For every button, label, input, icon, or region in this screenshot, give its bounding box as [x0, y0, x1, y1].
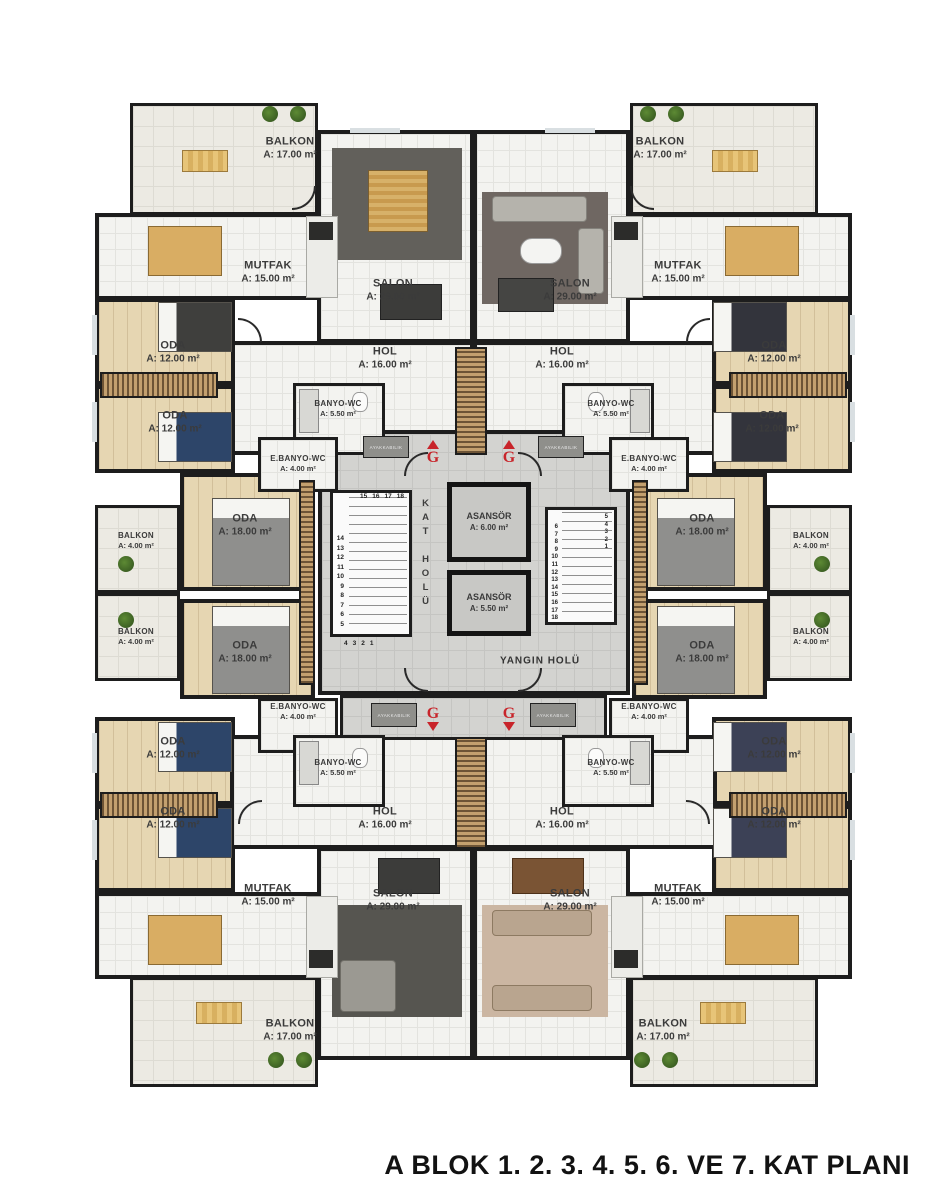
shoe-cabinet-top-right: AYAKKABILIK — [538, 436, 584, 458]
label-bedroom12-top-left-1: ODAA: 12.00 m² — [146, 338, 199, 365]
label-bedroom12-bottom-right-2: ODAA: 12.00 m² — [747, 804, 800, 831]
label-balcony17-bottom-left: BALKONA: 17.00 m² — [263, 1016, 316, 1043]
label-balcony4-right-1: BALKONA: 4.00 m² — [793, 531, 829, 551]
stove-icon — [614, 950, 638, 968]
elevator-label: ASANSÖR — [466, 592, 511, 604]
fire-hall-label: YANGIN HOLÜ — [500, 656, 580, 667]
label-livingroom-bottom-right: SALONA: 29.00 m² — [543, 886, 596, 913]
label-bedroom18-right-1: ODAA: 18.00 m² — [675, 511, 728, 538]
stove-icon — [309, 950, 333, 968]
g-label: G — [496, 706, 522, 721]
label-kitchen-bottom-left: MUTFAKA: 15.00 m² — [241, 881, 294, 908]
sofa — [340, 960, 396, 1012]
stair-left-numbers: 141312111098765 — [332, 534, 344, 629]
window — [92, 315, 97, 355]
window — [92, 733, 97, 773]
label-kitchen-bottom-right: MUTFAKA: 15.00 m² — [651, 881, 704, 908]
label-balcony17-top-left: BALKONA: 17.00 m² — [263, 134, 316, 161]
elevator-label: ASANSÖR — [466, 511, 511, 523]
wardrobe-top-right — [729, 372, 847, 398]
plan-caption: A BLOK 1. 2. 3. 4. 5. 6. VE 7. KAT PLANI — [384, 1150, 910, 1181]
arrow-up-icon — [503, 440, 515, 449]
window — [850, 733, 855, 773]
window — [850, 315, 855, 355]
arrow-down-icon — [427, 722, 439, 731]
window — [545, 128, 595, 133]
label-bedroom18-left-1: ODAA: 18.00 m² — [218, 511, 271, 538]
window — [92, 402, 97, 442]
elevator-large: ASANSÖRA: 6.00 m² — [447, 482, 531, 562]
stair-direction-down-right: G — [496, 706, 522, 731]
label-bedroom12-bottom-left-1: ODAA: 12.00 m² — [146, 734, 199, 761]
plant — [268, 1052, 284, 1068]
elevator-area: A: 5.50 m² — [466, 604, 511, 614]
label-balcony17-top-right: BALKONA: 17.00 m² — [633, 134, 686, 161]
plant — [640, 106, 656, 122]
floor-hall-label: KAT HOLÜ — [420, 498, 431, 633]
window — [850, 402, 855, 442]
wardrobe-top-left — [100, 372, 218, 398]
dining-table — [368, 170, 428, 232]
sofa — [492, 196, 587, 222]
label-bedroom18-left-2: ODAA: 18.00 m² — [218, 638, 271, 665]
stove-icon — [614, 222, 638, 240]
arrow-down-icon — [503, 722, 515, 731]
arrow-up-icon — [427, 440, 439, 449]
stair-steps — [349, 495, 407, 632]
plant — [662, 1052, 678, 1068]
stair-right-numbers: 6789101112131415161718 — [547, 524, 558, 623]
label-kitchen-top-right: MUTFAKA: 15.00 m² — [651, 258, 704, 285]
plant — [118, 612, 134, 628]
shoe-cabinet-bottom-right: AYAKKABILIK — [530, 703, 576, 727]
wardrobe-mid-left — [299, 480, 315, 685]
label-bedroom12-bottom-left-2: ODAA: 12.00 m² — [146, 804, 199, 831]
sun-lounger — [712, 150, 758, 172]
duct-shaft-bottom — [455, 737, 487, 849]
label-hall-bottom-right: HOLA: 16.00 m² — [535, 804, 588, 831]
sun-lounger — [700, 1002, 746, 1024]
g-label: G — [420, 706, 446, 721]
label-ensuite-top-left: E.BANYO-WCA: 4.00 m² — [270, 454, 325, 474]
window — [350, 128, 400, 133]
label-livingroom-bottom-left: SALONA: 29.00 m² — [366, 886, 419, 913]
shoe-cabinet-bottom-left: AYAKKABILIK — [371, 703, 417, 727]
label-bedroom12-top-right-2: ODAA: 12.00 m² — [745, 408, 798, 435]
plant — [296, 1052, 312, 1068]
kitchen-table — [725, 226, 799, 276]
g-label: G — [420, 450, 446, 465]
elevator-area: A: 6.00 m² — [466, 523, 511, 533]
label-hall-top-right: HOLA: 16.00 m² — [535, 344, 588, 371]
label-hall-bottom-left: HOLA: 16.00 m² — [358, 804, 411, 831]
label-bathroom-top-right: BANYO-WCA: 5.50 m² — [587, 399, 634, 419]
door-swing — [686, 318, 710, 342]
coffee-table — [520, 238, 562, 264]
elevator-small: ASANSÖRA: 5.50 m² — [447, 570, 531, 636]
label-livingroom-top-right: SALONA: 29.00 m² — [543, 276, 596, 303]
stair-left-bottom-numbers: 4321 — [344, 640, 379, 647]
label-balcony4-left-1: BALKONA: 4.00 m² — [118, 531, 154, 551]
sofa — [492, 910, 592, 936]
label-bedroom12-top-left-2: ODAA: 12.00 m² — [148, 408, 201, 435]
plant — [668, 106, 684, 122]
stair-right-start-numbers: 54321 — [598, 514, 608, 552]
plant — [118, 556, 134, 572]
window — [850, 820, 855, 860]
label-balcony4-left-2: BALKONA: 4.00 m² — [118, 627, 154, 647]
label-balcony17-bottom-right: BALKONA: 17.00 m² — [636, 1016, 689, 1043]
kitchen-table — [148, 226, 222, 276]
label-bedroom18-right-2: ODAA: 18.00 m² — [675, 638, 728, 665]
plant — [814, 556, 830, 572]
shoe-cabinet-top-left: AYAKKABILIK — [363, 436, 409, 458]
plant — [262, 106, 278, 122]
stove-icon — [309, 222, 333, 240]
label-balcony4-right-2: BALKONA: 4.00 m² — [793, 627, 829, 647]
stair-left-top-numbers: 15161718 — [360, 493, 409, 500]
label-ensuite-bottom-right: E.BANYO-WCA: 4.00 m² — [621, 702, 676, 722]
label-hall-top-left: HOLA: 16.00 m² — [358, 344, 411, 371]
sun-lounger — [196, 1002, 242, 1024]
label-ensuite-top-right: E.BANYO-WCA: 4.00 m² — [621, 454, 676, 474]
label-bedroom12-top-right-1: ODAA: 12.00 m² — [747, 338, 800, 365]
floor-plan-canvas: { "caption": "A BLOK 1. 2. 3. 4. 5. 6. V… — [0, 0, 932, 1200]
label-bathroom-bottom-right: BANYO-WCA: 5.50 m² — [587, 758, 634, 778]
g-label: G — [496, 450, 522, 465]
kitchen-table — [148, 915, 222, 965]
stair-direction-down-left: G — [420, 706, 446, 731]
label-ensuite-bottom-left: E.BANYO-WCA: 4.00 m² — [270, 702, 325, 722]
label-bathroom-bottom-left: BANYO-WCA: 5.50 m² — [314, 758, 361, 778]
label-kitchen-top-left: MUTFAKA: 15.00 m² — [241, 258, 294, 285]
stair-direction-up-left: G — [420, 440, 446, 465]
wardrobe-mid-right — [632, 480, 648, 685]
plant — [634, 1052, 650, 1068]
label-bedroom12-bottom-right-1: ODAA: 12.00 m² — [747, 734, 800, 761]
sofa — [492, 985, 592, 1011]
plant — [814, 612, 830, 628]
window — [92, 820, 97, 860]
stair-direction-up-right: G — [496, 440, 522, 465]
kitchen-table — [725, 915, 799, 965]
label-bathroom-top-left: BANYO-WCA: 5.50 m² — [314, 399, 361, 419]
duct-shaft-top — [455, 347, 487, 455]
door-swing — [238, 318, 262, 342]
plant — [290, 106, 306, 122]
label-livingroom-top-left: SALONA: 29.00 m² — [366, 276, 419, 303]
sun-lounger — [182, 150, 228, 172]
